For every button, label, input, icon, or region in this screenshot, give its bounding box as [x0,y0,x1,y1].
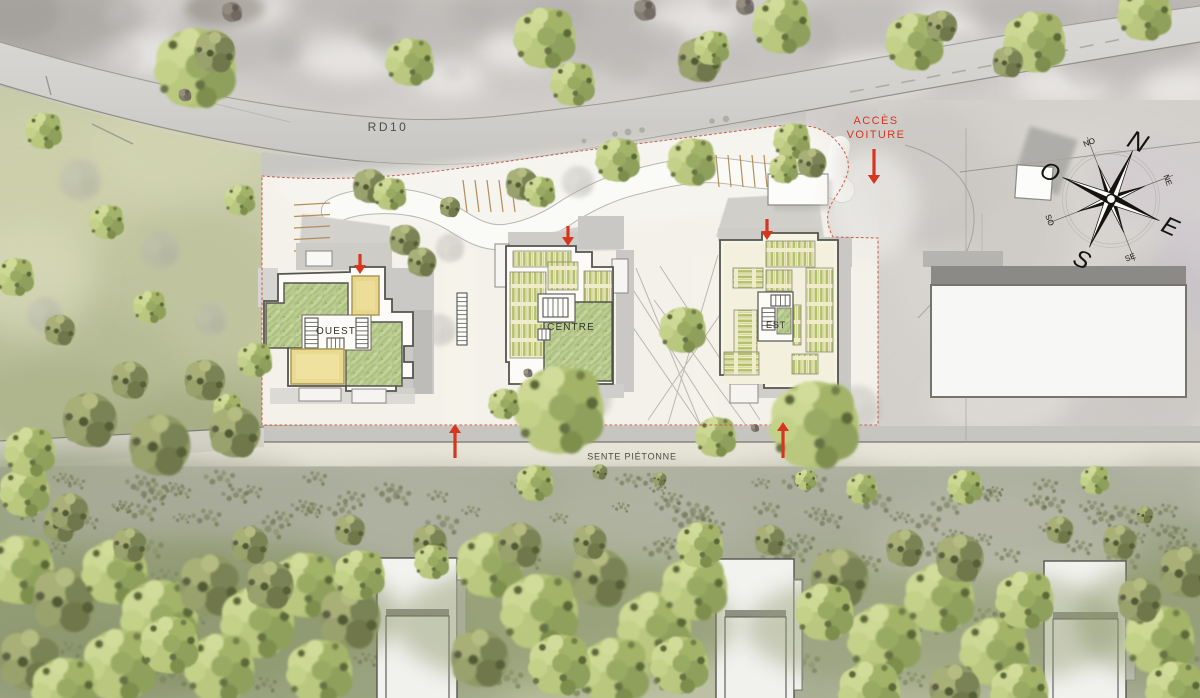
svg-text:ACCÈS: ACCÈS [854,114,899,127]
svg-text:OUEST: OUEST [316,326,356,337]
svg-text:SENTE PIÉTONNE: SENTE PIÉTONNE [587,452,677,462]
svg-text:EST: EST [766,320,786,330]
svg-text:RD10: RD10 [368,120,409,134]
svg-text:VOITURE: VOITURE [847,129,906,141]
svg-text:CENTRE: CENTRE [547,322,595,333]
